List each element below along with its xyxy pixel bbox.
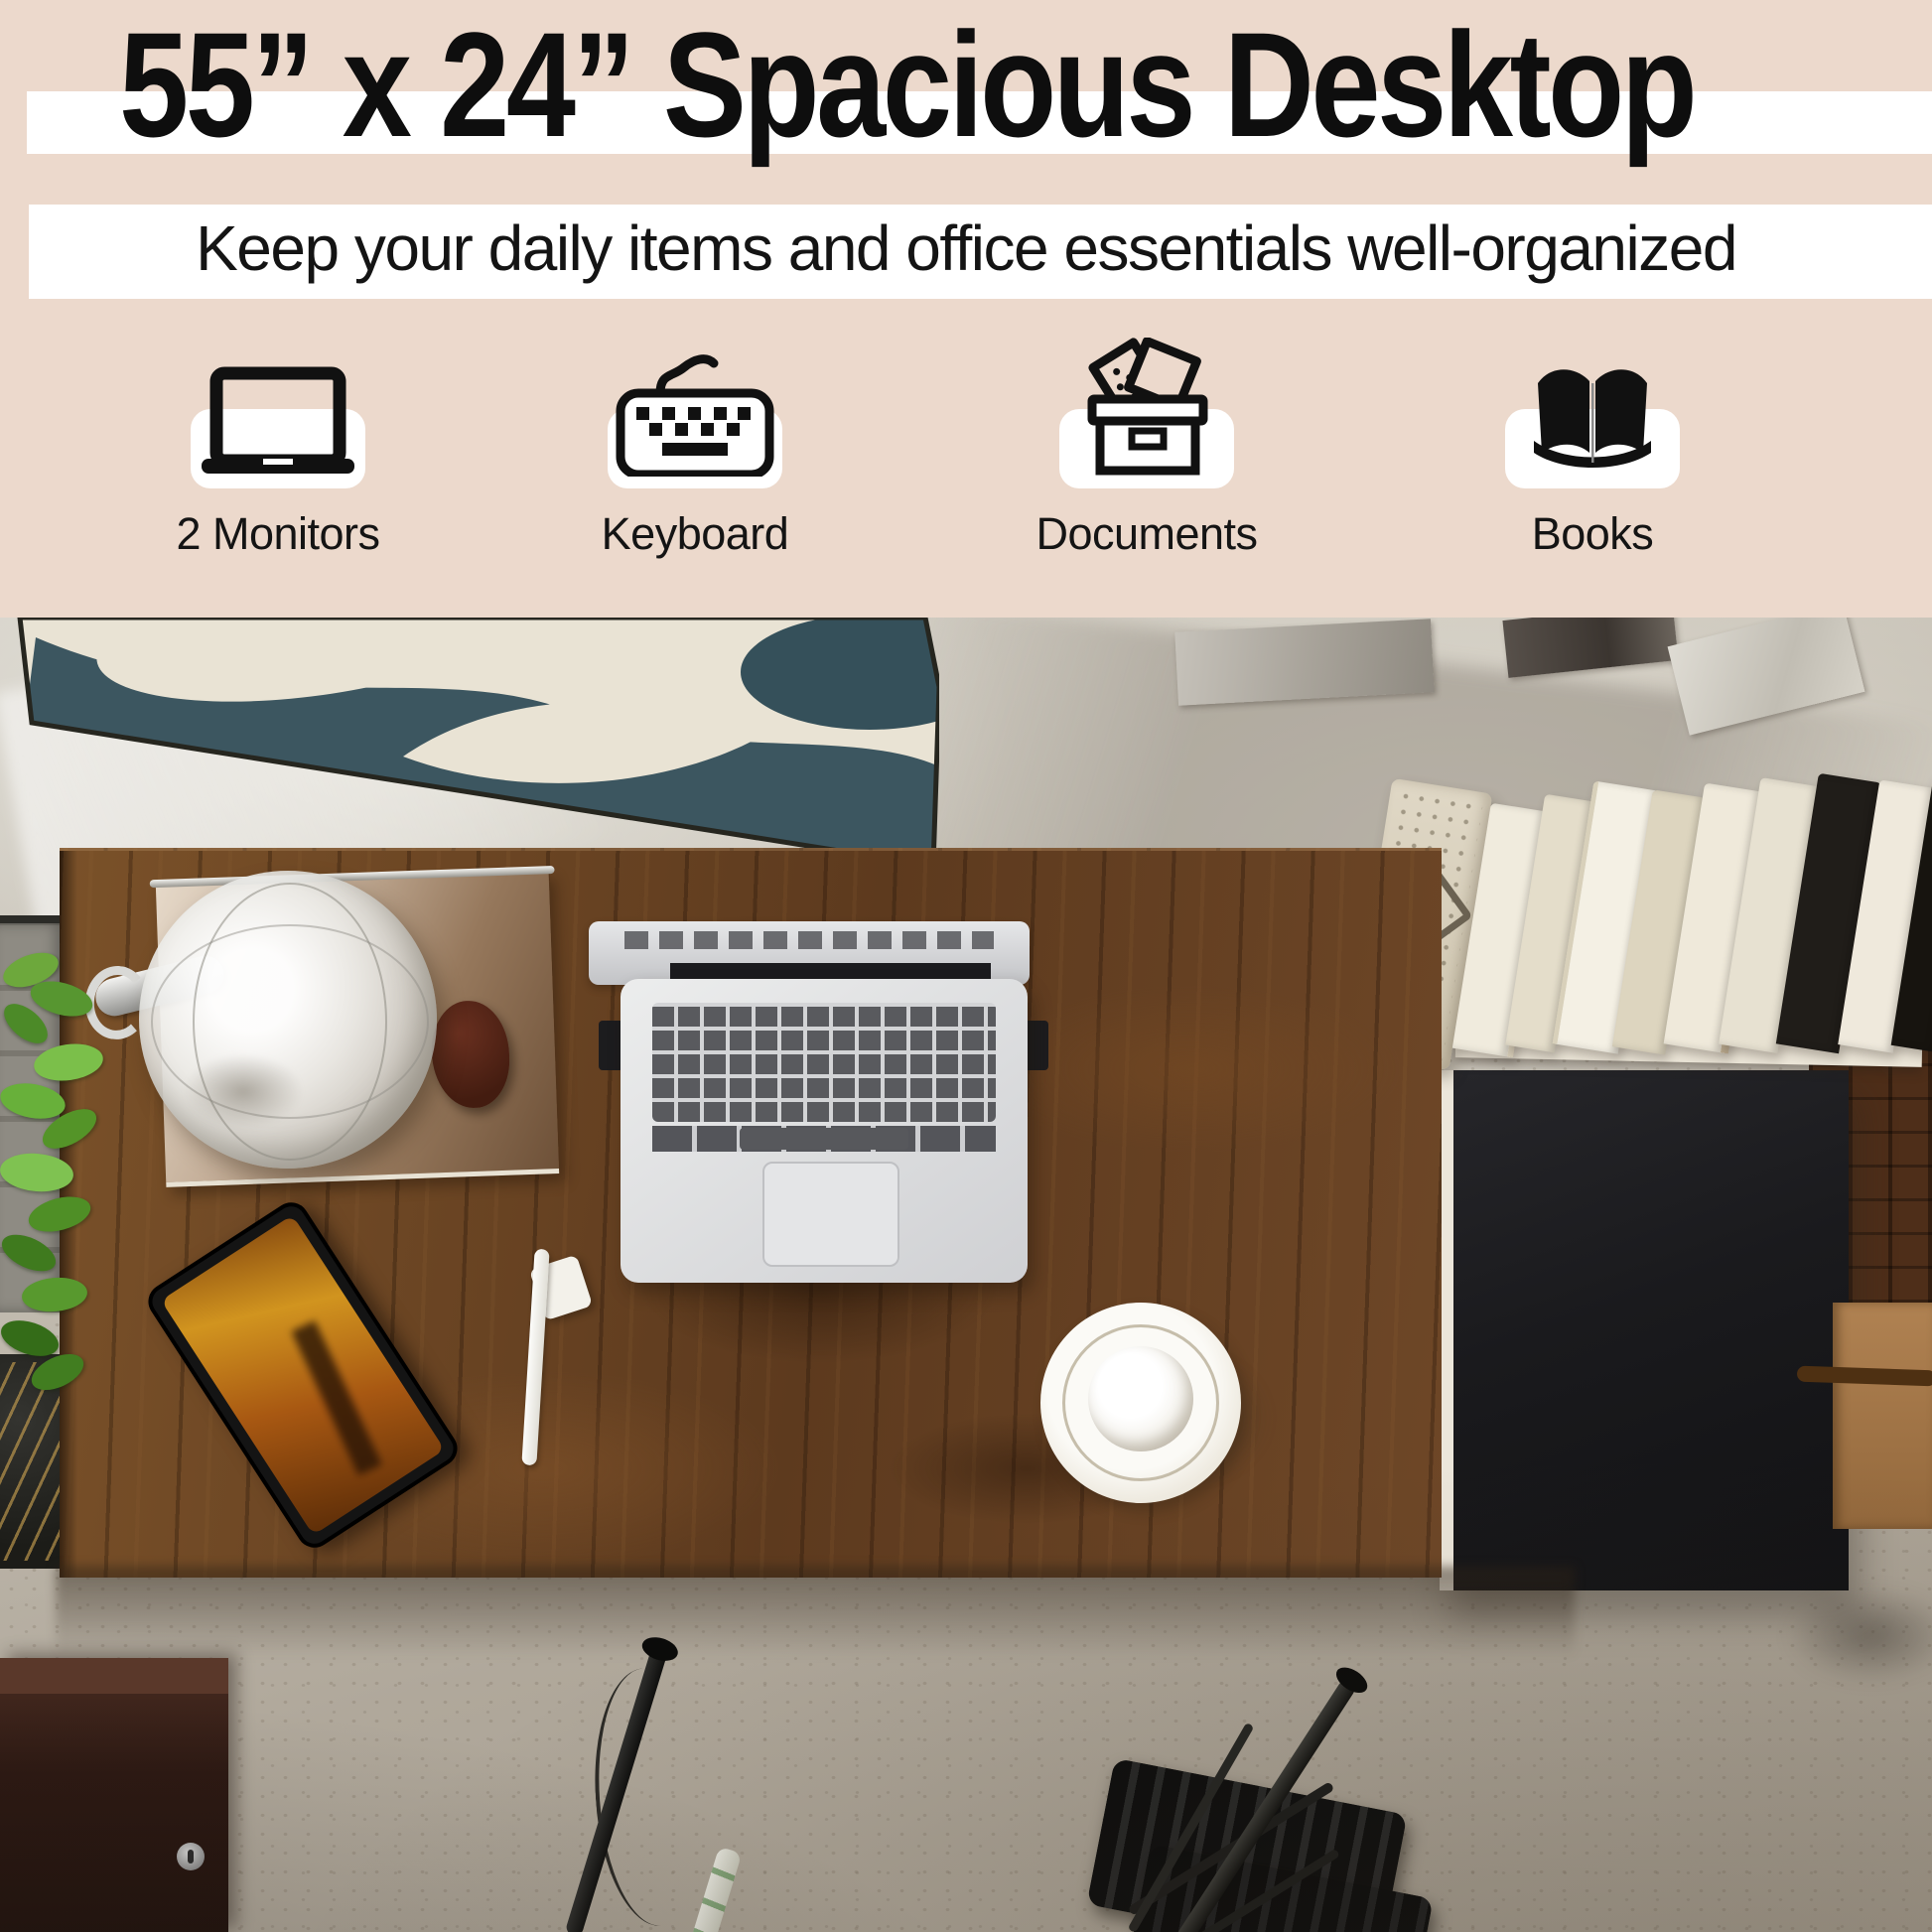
storage-cabinet: [0, 1658, 228, 1932]
feature-label: Keyboard: [546, 508, 844, 560]
feature-monitors: 2 Monitors: [169, 338, 387, 576]
page-title: 55” x 24” Spacious Desktop: [0, 10, 1932, 159]
laptop-spacebar-row: [652, 1126, 996, 1152]
laptop-spacebar: [740, 1128, 908, 1150]
floor-photo: [1174, 619, 1435, 705]
feature-documents: Documents: [1037, 338, 1256, 576]
globe-land-patch: [169, 1044, 318, 1139]
keyboard-icon: [611, 338, 779, 477]
laptop-body: [621, 979, 1028, 1283]
feature-label: Documents: [998, 508, 1296, 560]
laptop-lid-key-reflection: [624, 931, 994, 949]
documents-box-icon: [1062, 338, 1231, 477]
desk-edge-shadow: [56, 1567, 1575, 1658]
book-shelf-row: [1368, 766, 1932, 1094]
abstract-wall-art: [6, 618, 939, 874]
product-infographic: 55” x 24” Spacious Desktop Keep your dai…: [0, 0, 1932, 1932]
saucer: [1040, 1303, 1241, 1503]
desk-photo: [0, 618, 1932, 1932]
laptop-keyboard: [652, 1003, 996, 1122]
desk-return-panel: [1440, 1070, 1849, 1590]
magazine-apple-photo: [430, 1000, 511, 1110]
feature-label: Books: [1444, 508, 1741, 560]
laptop-lid: [589, 921, 1030, 985]
open-book-icon: [1508, 338, 1677, 477]
page-subtitle: Keep your daily items and office essenti…: [0, 216, 1932, 280]
floor-photo: [1502, 618, 1678, 678]
side-cabinet: [1833, 1303, 1932, 1529]
coffee-cup: [1088, 1346, 1193, 1451]
page-title-text: 55” x 24” Spacious Desktop: [119, 10, 1694, 159]
feature-keyboard: Keyboard: [586, 338, 804, 576]
feature-books: Books: [1483, 338, 1702, 576]
laptop: [581, 921, 1037, 1299]
laptop-trackpad: [762, 1162, 899, 1267]
feature-label: 2 Monitors: [129, 508, 427, 560]
laptop-icon: [194, 338, 362, 477]
keyhole: [177, 1843, 205, 1870]
